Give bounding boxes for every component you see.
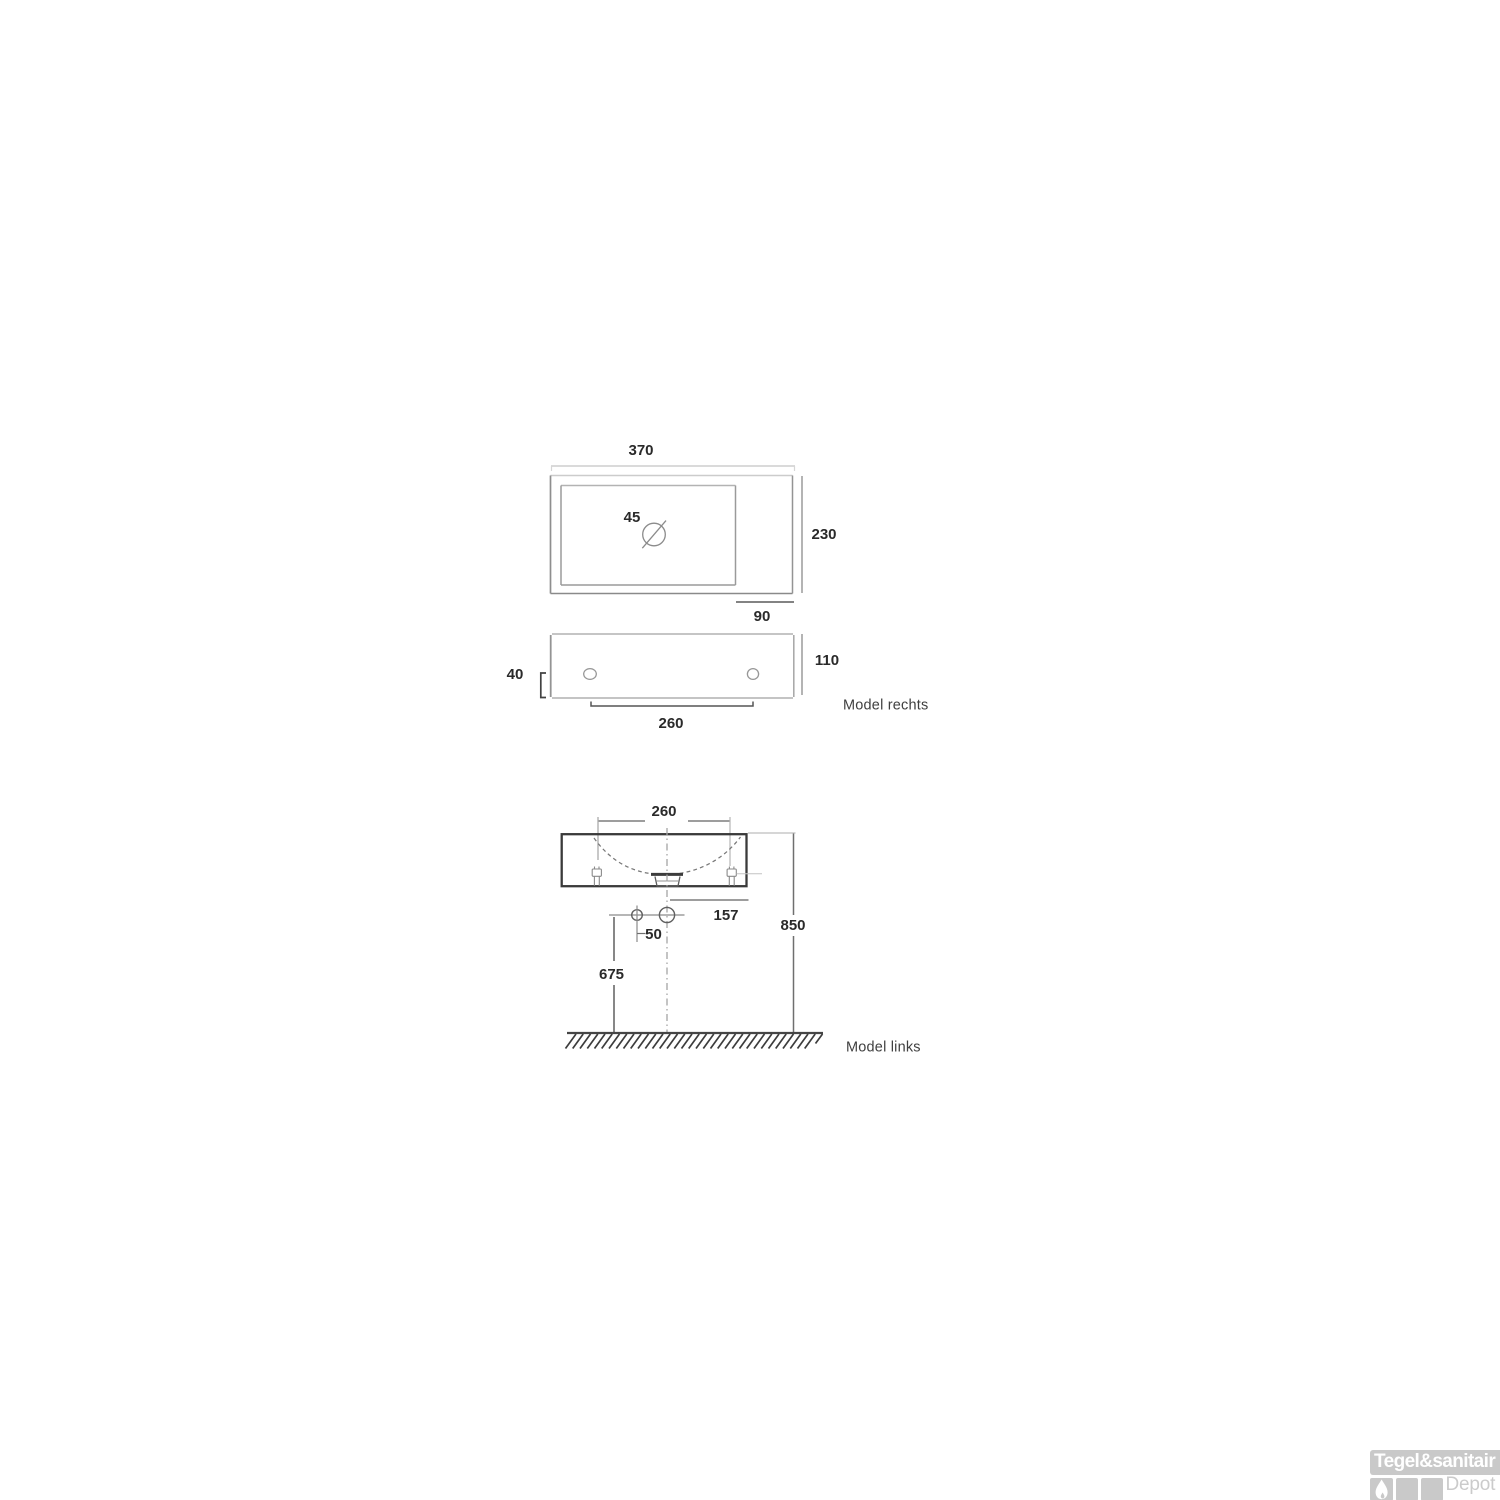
svg-text:90: 90 bbox=[754, 608, 771, 625]
svg-text:230: 230 bbox=[811, 526, 836, 543]
svg-text:50: 50 bbox=[645, 926, 662, 943]
svg-text:45: 45 bbox=[624, 509, 641, 526]
svg-text:Model rechts: Model rechts bbox=[843, 698, 928, 714]
svg-text:157: 157 bbox=[713, 907, 738, 924]
svg-text:370: 370 bbox=[628, 442, 653, 459]
svg-text:850: 850 bbox=[780, 917, 805, 934]
svg-text:40: 40 bbox=[507, 666, 524, 683]
svg-text:260: 260 bbox=[658, 715, 683, 732]
svg-text:110: 110 bbox=[815, 652, 839, 669]
svg-text:Model links: Model links bbox=[846, 1040, 921, 1056]
svg-text:260: 260 bbox=[651, 803, 676, 820]
svg-text:675: 675 bbox=[599, 966, 624, 983]
